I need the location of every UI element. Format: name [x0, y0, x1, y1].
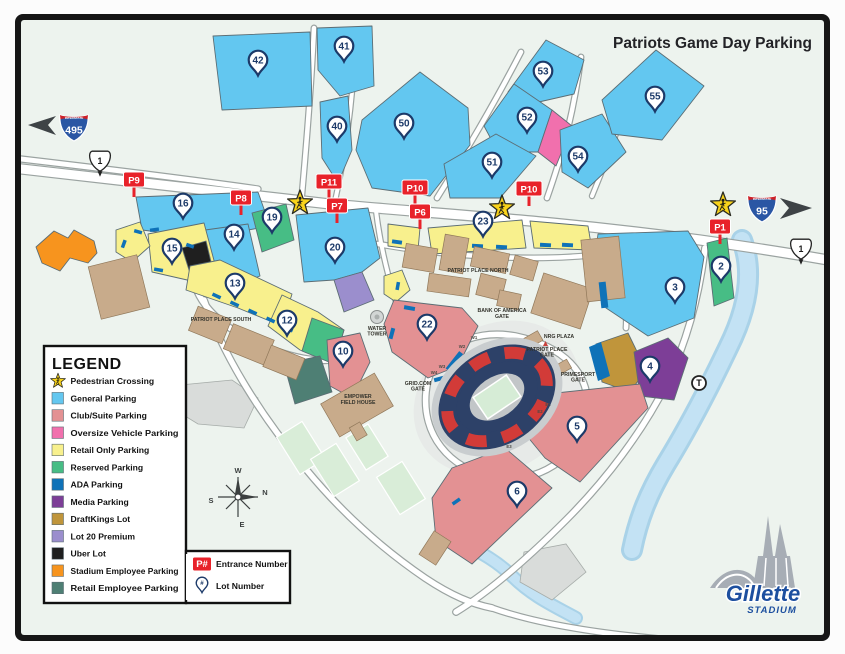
- route1-number: 1: [799, 244, 804, 254]
- legend-title: LEGEND: [52, 356, 122, 373]
- svg-text:53: 53: [537, 67, 549, 78]
- gate-label: W3: [439, 364, 446, 369]
- legend-item-label: Stadium Employee Parking: [71, 566, 179, 576]
- legend-item-label: Retail Only Parking: [71, 445, 150, 455]
- legend-item-media-parking: Media Parking: [52, 496, 129, 508]
- svg-text:52: 52: [521, 113, 533, 124]
- legend-swatch: [52, 582, 64, 594]
- compass-w: W: [234, 466, 242, 475]
- legend-swatch: [52, 530, 64, 542]
- svg-text:50: 50: [398, 119, 410, 130]
- svg-text:P#: P#: [196, 559, 208, 570]
- svg-text:#: #: [200, 580, 204, 587]
- compass-s: S: [208, 496, 213, 505]
- transit-letter: T: [696, 378, 702, 388]
- gate-label: E3: [506, 444, 512, 449]
- svg-text:55: 55: [649, 92, 661, 103]
- map-label: PATRIOT PLACE NORTH: [448, 268, 509, 274]
- map-label: EMPOWERFIELD HOUSE: [341, 394, 376, 406]
- svg-text:2: 2: [718, 262, 724, 273]
- svg-text:13: 13: [229, 279, 241, 290]
- route1-number: 1: [98, 156, 103, 166]
- entrance-badge-icon: P#: [193, 558, 211, 571]
- legend-swatch: [52, 565, 64, 577]
- i495-number: 495: [65, 125, 83, 137]
- legend-item-label: Lot 20 Premium: [71, 531, 136, 541]
- gate-label: W2: [459, 344, 466, 349]
- legend-item-label: Uber Lot: [71, 549, 106, 559]
- svg-text:20: 20: [329, 243, 341, 254]
- legend-item-label: Oversize Vehicle Parking: [71, 428, 179, 438]
- legend-item-label: Entrance Number: [216, 559, 288, 569]
- gate-label: E2: [537, 409, 543, 414]
- legend-item-label: Lot Number: [216, 581, 265, 591]
- compass-e: E: [239, 520, 244, 529]
- legend-item-uber-lot: Uber Lot: [52, 548, 106, 560]
- svg-text:5: 5: [574, 422, 580, 433]
- parking-map: INTERSTATE 495 INTERSTATE 95 1 1 T: [0, 0, 845, 654]
- svg-text:19: 19: [266, 213, 278, 224]
- svg-text:40: 40: [331, 122, 343, 133]
- legend-item-oversize-vehicle-parking: Oversize Vehicle Parking: [52, 427, 179, 439]
- legend-item-label: Club/Suite Parking: [71, 411, 147, 421]
- lot-area-42: [213, 32, 312, 110]
- svg-text:23: 23: [477, 217, 489, 228]
- building: [402, 243, 438, 272]
- svg-text:41: 41: [338, 42, 350, 53]
- legend-swatch: [52, 410, 64, 422]
- legend-item-label: Media Parking: [71, 497, 129, 507]
- legend-item-ada-parking: ADA Parking: [52, 479, 123, 491]
- compass-n: N: [262, 488, 267, 497]
- svg-text:P8: P8: [235, 193, 247, 204]
- svg-text:P1: P1: [714, 222, 726, 233]
- svg-text:51: 51: [486, 158, 498, 169]
- gate-label: E1: [545, 402, 551, 407]
- legend-swatch: [52, 479, 64, 491]
- map-label: NRG PLAZA: [544, 334, 575, 340]
- legend-item-label: Retail Employee Parking: [71, 583, 179, 593]
- svg-text:P9: P9: [128, 175, 140, 186]
- legend-swatch: [52, 444, 64, 456]
- svg-text:3: 3: [672, 283, 678, 294]
- legend-item-label: General Parking: [71, 393, 137, 403]
- legend-box-join: [186, 554, 189, 600]
- legend-swatch: [52, 392, 64, 404]
- legend-swatch: [52, 461, 64, 473]
- gate-label: W4: [431, 370, 438, 375]
- page-title: Patriots Game Day Parking: [613, 35, 812, 52]
- legend-swatch: [52, 427, 64, 439]
- logo-sub: STADIUM: [747, 605, 797, 616]
- legend-item-entrance-number: P#Entrance Number: [193, 558, 288, 571]
- logo-brand: Gillette: [726, 581, 801, 606]
- svg-text:42: 42: [252, 56, 264, 67]
- svg-text:14: 14: [228, 230, 240, 241]
- svg-text:P10: P10: [521, 184, 538, 195]
- interstate-word: INTERSTATE: [753, 197, 771, 201]
- svg-text:4: 4: [647, 362, 653, 373]
- svg-text:15: 15: [166, 244, 178, 255]
- legend-item-stadium-employee-parking: Stadium Employee Parking: [52, 565, 179, 577]
- svg-text:22: 22: [421, 320, 433, 331]
- legend-swatch: [52, 548, 64, 560]
- svg-text:54: 54: [572, 152, 584, 163]
- i95-number: 95: [756, 206, 768, 218]
- parking-map-page: INTERSTATE 495 INTERSTATE 95 1 1 T: [0, 0, 845, 654]
- map-label: WATERTOWER: [367, 326, 386, 338]
- svg-text:P7: P7: [331, 201, 343, 212]
- legend-item-label: Pedestrian Crossing: [71, 376, 155, 386]
- svg-text:12: 12: [281, 316, 293, 327]
- gate-label: W1: [471, 335, 478, 340]
- legend-item-label: ADA Parking: [71, 480, 123, 490]
- legend-item-label: DraftKings Lot: [71, 514, 131, 524]
- svg-text:10: 10: [337, 347, 349, 358]
- legend-swatch: [52, 513, 64, 525]
- svg-text:P11: P11: [321, 177, 338, 188]
- transit-station-icon: T: [692, 376, 706, 390]
- svg-text:P10: P10: [407, 183, 424, 194]
- legend-item-retail-employee-parking: Retail Employee Parking: [52, 582, 179, 594]
- map-label: PATRIOT PLACE SOUTH: [191, 317, 252, 323]
- interstate-word: INTERSTATE: [65, 116, 83, 120]
- legend-swatch: [52, 496, 64, 508]
- svg-text:P6: P6: [414, 207, 426, 218]
- water-tower: [375, 315, 380, 320]
- legend-item-draftkings-lot: DraftKings Lot: [52, 513, 130, 525]
- svg-text:16: 16: [177, 199, 189, 210]
- legend-item-label: Reserved Parking: [71, 462, 144, 472]
- svg-text:6: 6: [514, 487, 520, 498]
